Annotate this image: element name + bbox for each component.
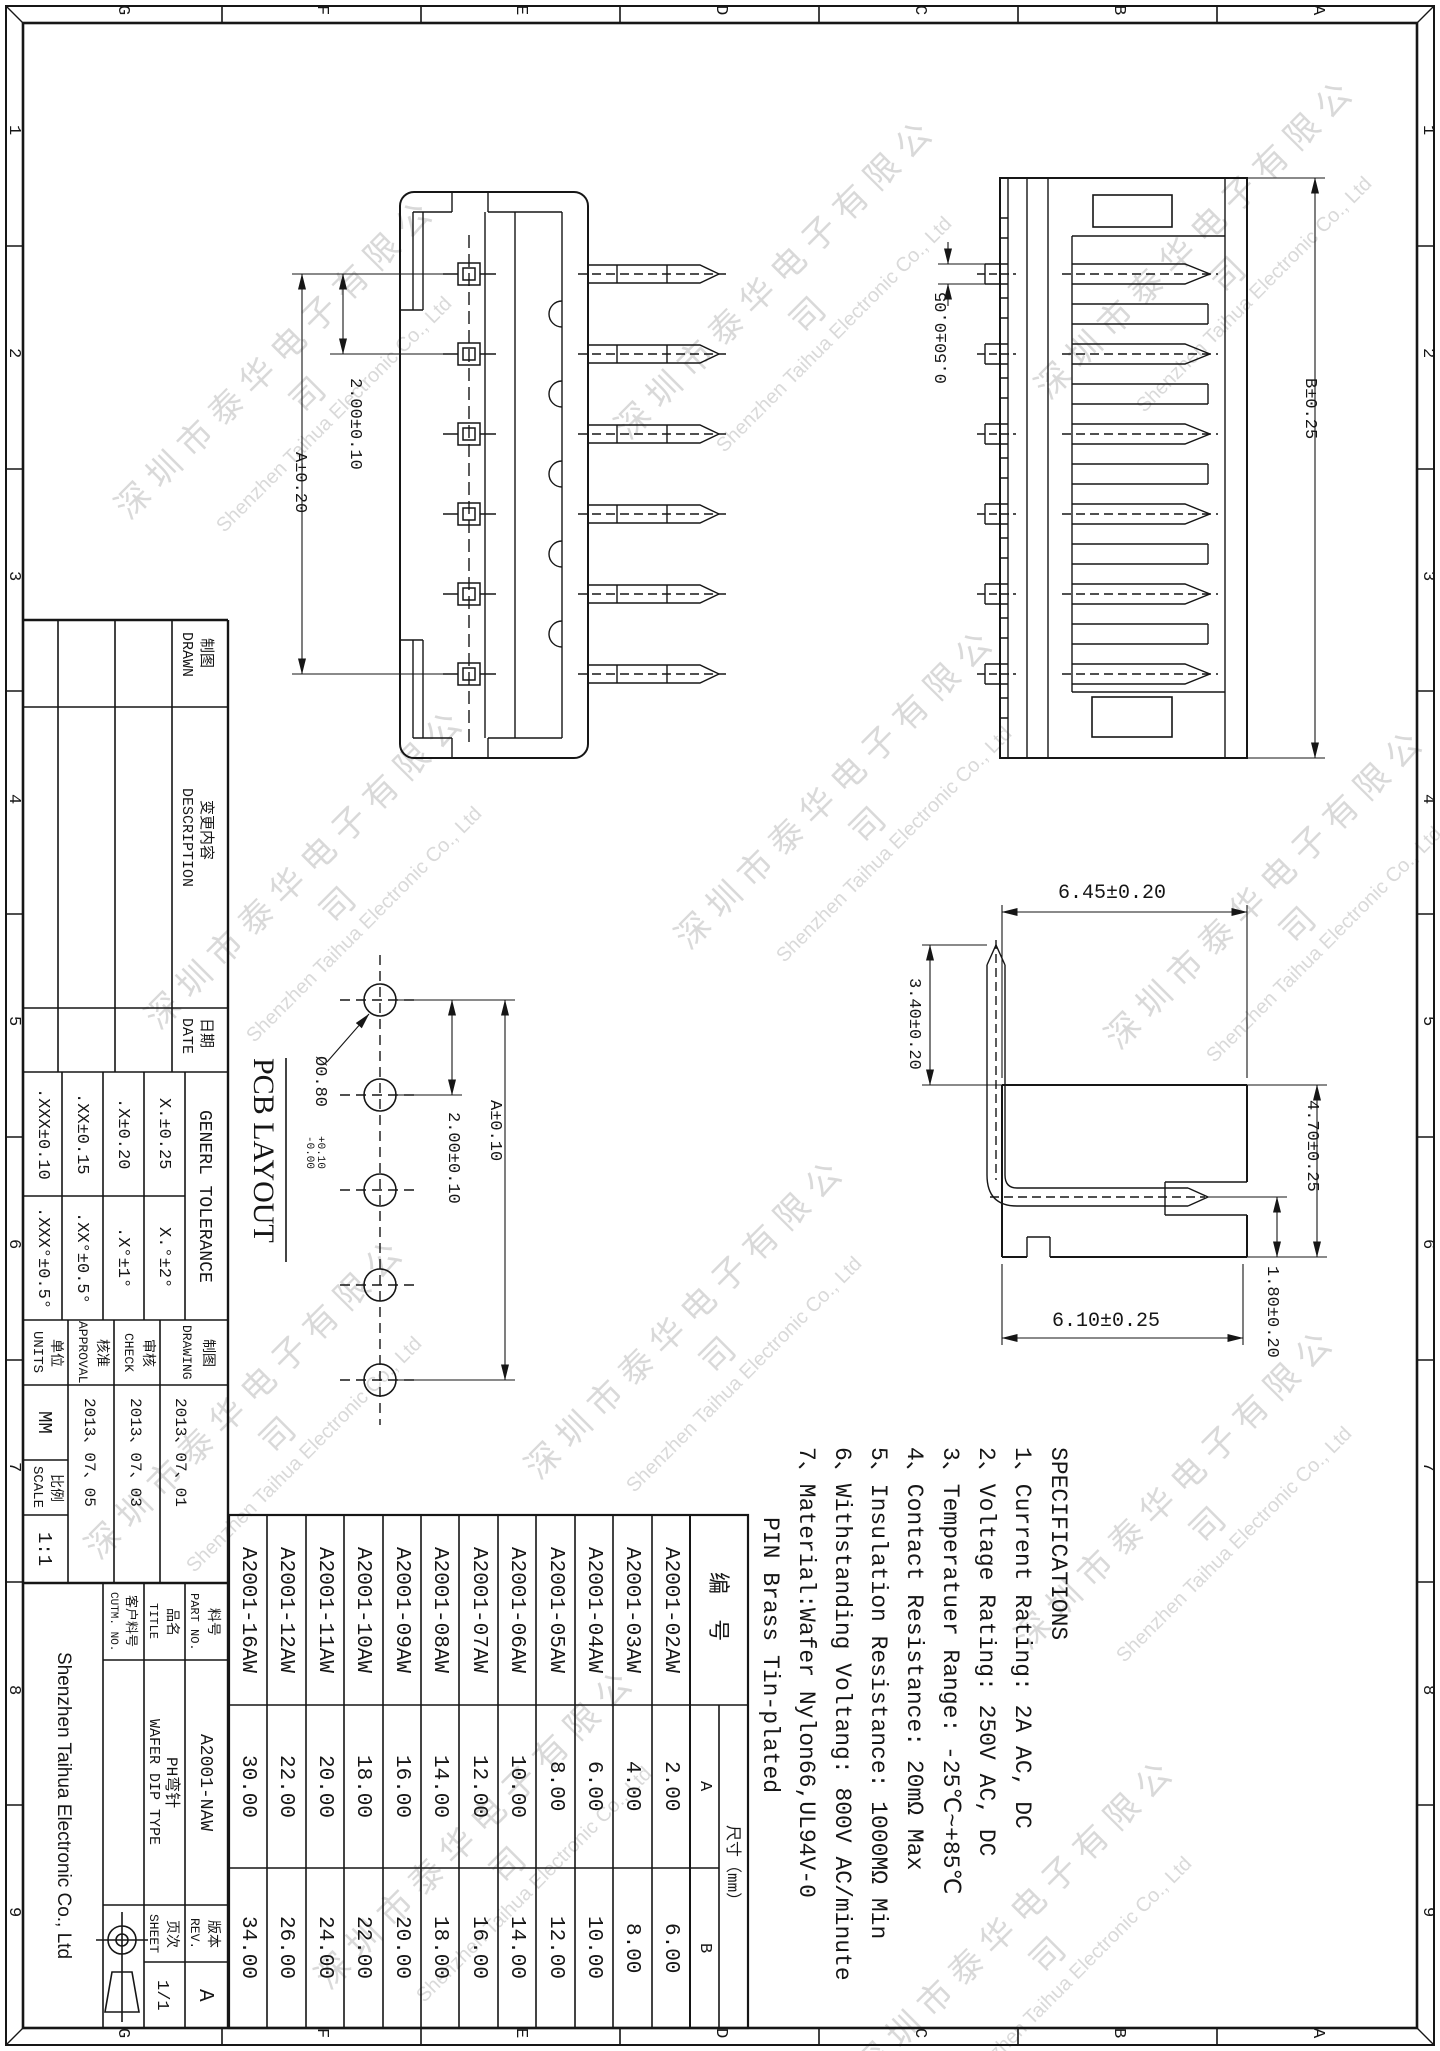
dim-a-value: 20.00 [314,1705,335,1868]
zone-letter-bottom: C [911,2028,928,2038]
zone-number-right: 3 [1419,571,1436,581]
date-label: DATE [179,1018,194,1054]
pcb-layout-title: PCB LAYOUT [248,1058,278,1243]
zone-number-right: 5 [1419,1016,1436,1026]
part-no-label: PART NO. [188,1583,200,1660]
tolerance-linear: .XX±0.15 [73,1072,90,1196]
drawing-linework [0,0,1440,2051]
tolerance-linear: .X±0.20 [114,1072,131,1196]
zone-letter-top: F [313,5,330,15]
spec-item: 7、Material:Wafer Nylon66,UL94V-0 [794,1447,817,1898]
dim-a-value: 30.00 [237,1705,258,1868]
rev-label-cn: 版本 [205,1905,219,1962]
zone-number-left: 2 [5,348,22,358]
zone-number-left: 9 [5,1907,22,1917]
dim-b-value: 16.00 [468,1868,489,2028]
dim-a-value: 22.00 [275,1705,296,1868]
zone-number-right: 2 [1419,348,1436,358]
spec-item: 1、Current Rating: 2A AC, DC [1010,1447,1033,1829]
check-date: 2013、07、03 [127,1398,143,1507]
dim-front-pitch: 2.00±0.10 [346,378,363,470]
zone-letter-bottom: B [1110,2028,1127,2038]
dim-b-value: 12.00 [545,1868,566,2028]
zone-letter-top: D [712,5,729,15]
part-number: A2001-10AW [352,1515,373,1705]
dim-b-value: 10.00 [583,1868,604,2028]
title-label: TITLE [147,1583,159,1660]
tolerance-angular: .XX°±0.5° [73,1196,90,1320]
zone-number-right: 7 [1419,1462,1436,1472]
scale-label-cn: 比例 [48,1460,62,1515]
tolerance-title: GENERL TOLERANCE [195,1072,213,1320]
dim-b-value: 6.00 [660,1868,681,2028]
zone-letter-top: B [1110,5,1127,15]
pcb-layout [286,955,515,1425]
units-value: MM [34,1385,53,1460]
part-number: A2001-05AW [545,1515,566,1705]
col-b-header: B [696,1868,713,2028]
drawing-label-cn: 制图 [200,1320,214,1385]
dim-pcb-pitch: 2.00±0.10 [444,1112,461,1204]
zone-letter-bottom: G [114,2028,131,2038]
part-number: A2001-03AW [621,1515,642,1705]
spec-item: 4、Contact Resistance: 20mΩ Max [902,1447,925,1870]
zone-letter-top: E [512,5,529,15]
dim-b-value: 24.00 [314,1868,335,2028]
dim-a-value: 10.00 [506,1705,527,1868]
border-frame [6,6,1434,2045]
dim-bottom-width: 6.10±0.25 [1052,1312,1160,1332]
dim-hole-tolerance: +0.10 -0.00 [303,1136,325,1169]
drawing-label: DRAWING [180,1320,193,1385]
zone-number-left: 3 [5,571,22,581]
dim-b-value: 14.00 [506,1868,527,2028]
date-label-cn: 日期 [198,1018,213,1048]
sheet-value: 1/1 [153,1962,170,2028]
part-number: A2001-08AW [429,1515,450,1705]
zone-letter-top: C [911,5,928,15]
product-name: WAFER DIP TYPE [146,1660,161,1905]
col-a-header: A [696,1705,713,1868]
dim-tab-width: 0.50±0.05 [934,292,951,384]
dim-front-overall: A±0.20 [291,452,308,513]
tolerance-linear: X.±0.25 [155,1072,172,1196]
part-no-label-cn: 料号 [205,1583,219,1660]
title-label-cn: 品名 [164,1583,178,1660]
dim-b-value: 20.00 [391,1868,412,2028]
units-label: UNITS [30,1320,44,1385]
product-name-cn: PH弯针 [163,1660,179,1905]
dim-top-overall: B±0.25 [1301,378,1318,439]
approval-date: 2013、07、05 [81,1398,97,1507]
tolerance-angular: X.°±2° [155,1196,172,1320]
dim-a-value: 2.00 [660,1705,681,1868]
units-label-cn: 单位 [48,1320,62,1385]
part-number: A2001-04AW [583,1515,604,1705]
zone-letter-top: G [114,5,131,15]
dim-header: 尺寸（mm） [724,1705,740,2028]
scale-label: SCALE [30,1460,44,1515]
part-number: A2001-09AW [391,1515,412,1705]
zone-letter-bottom: E [512,2028,529,2038]
company-name: Shenzhen Taihua Electronic Co., Ltd [54,1583,73,2028]
spec-item: 6、Withstanding Voltang: 800V AC/minute [830,1447,853,1981]
description-label-cn: 变更内容 [198,800,213,860]
spec-item: 3、Temperatuer Range: -25℃~+85℃ [938,1447,961,1894]
sheet-label: SHEET [147,1905,160,1962]
zone-number-right: 6 [1419,1239,1436,1249]
part-number: A2001-02AW [660,1515,681,1705]
cutm-label: CUTM. NO. [107,1583,118,1660]
top-view [938,178,1325,758]
drawn-label: DRAWN [179,632,194,677]
check-label: CHECK [122,1320,135,1385]
scale-value: 1:1 [34,1515,53,1583]
dim-b-value: 8.00 [621,1868,642,2028]
dim-a-value: 18.00 [352,1705,373,1868]
dim-a-value: 4.00 [621,1705,642,1868]
rev-label: REV. [188,1905,201,1962]
tolerance-linear: .XXX±0.10 [34,1072,51,1196]
part-number: A2001-16AW [237,1515,258,1705]
zone-number-left: 4 [5,794,22,804]
sheet-label-cn: 页次 [164,1905,178,1962]
dim-a-value: 8.00 [545,1705,566,1868]
zone-number-right: 9 [1419,1907,1436,1917]
dim-profile-width: 6.45±0.20 [1058,884,1166,904]
zone-number-left: 8 [5,1685,22,1695]
dim-hole-dia: Ø0.80 [311,1056,328,1107]
dim-a-value: 16.00 [391,1705,412,1868]
zone-letter-top: A [1309,5,1326,15]
zone-number-right: 1 [1419,125,1436,135]
dim-b-value: 34.00 [237,1868,258,2028]
description-label: DESCRIPTION [179,788,194,887]
zone-number-right: 4 [1419,794,1436,804]
dim-tail-length: 1.80±0.20 [1263,1266,1280,1358]
dim-b-value: 18.00 [429,1868,450,2028]
dim-a-value: 14.00 [429,1705,450,1868]
drawing-date: 2013、07、01 [172,1398,188,1507]
dim-a-value: 6.00 [583,1705,604,1868]
dim-b-value: 22.00 [352,1868,373,2028]
spec-note: PIN Brass Tin-plated [758,1517,781,1793]
zone-letter-bottom: D [712,2028,729,2038]
zone-number-right: 8 [1419,1685,1436,1695]
engineering-drawing-sheet: 深圳市泰华电子有限公司Shenzhen Taihua Electronic Co… [0,0,1440,2051]
approval-label-cn: 核准 [94,1320,108,1385]
zone-number-left: 1 [5,125,22,135]
cutm-label-cn: 客户料号 [124,1583,137,1660]
dim-b-value: 26.00 [275,1868,296,2028]
tolerance-angular: .XXX°±0.5° [34,1196,51,1320]
front-view [292,192,726,758]
part-number: A2001-07AW [468,1515,489,1705]
zone-number-left: 6 [5,1239,22,1249]
specs-title: SPECIFICATIONS [1046,1447,1069,1640]
part-number: A2001-12AW [275,1515,296,1705]
dim-pcb-overall: A±0.10 [486,1100,503,1161]
part-number: A2001-11AW [314,1515,335,1705]
rev-value: A [194,1962,215,2028]
zone-number-left: 5 [5,1016,22,1026]
dim-a-value: 12.00 [468,1705,489,1868]
zone-letter-bottom: A [1309,2028,1326,2038]
check-label-cn: 审核 [140,1320,154,1385]
approval-label: APPROVAL [76,1320,89,1385]
zone-letter-bottom: F [313,2028,330,2038]
spec-item: 2、Voltage Rating: 250V AC, DC [974,1447,997,1856]
drawn-label-cn: 制图 [198,638,213,668]
zone-number-left: 7 [5,1462,22,1472]
spec-item: 5、Insulation Resistance: 1000MΩ Min [866,1447,889,1939]
dim-pin-height: 3.40±0.20 [905,978,922,1070]
parts-header: 编 号 [705,1515,727,1705]
part-number: A2001-06AW [506,1515,527,1705]
tolerance-angular: .X°±1° [114,1196,131,1320]
dim-body-height: 4.70±0.25 [1303,1100,1320,1192]
part-no-value: A2001-NAW [196,1660,214,1905]
